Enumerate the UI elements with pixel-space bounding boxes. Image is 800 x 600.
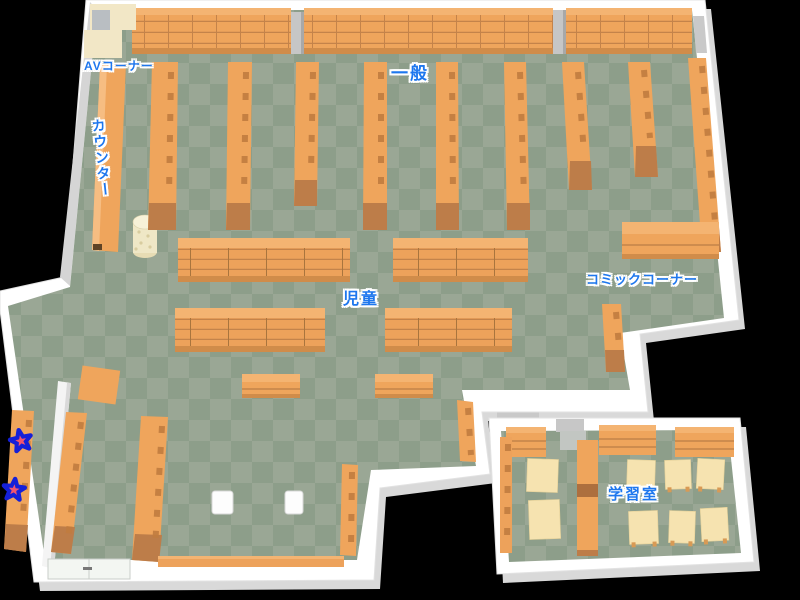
children-bench-right [375, 374, 433, 398]
entrance-door [48, 559, 130, 579]
library-floor-map: AVコーナー 一般 カウンター 児童 コミックコーナー 学習室 [0, 0, 800, 600]
wall-pillar-2 [553, 10, 566, 54]
wall-shelving-right [566, 8, 692, 54]
label-av-corner: AVコーナー [84, 57, 154, 74]
children-bench-left [242, 374, 300, 398]
wall-shelving-center [304, 8, 553, 54]
bookshelf-lower-rightwall [340, 464, 358, 556]
label-general: 一般 [391, 59, 429, 84]
bottom-wall-shelf [158, 556, 344, 567]
label-children: 児童 [343, 285, 379, 309]
wall-pillar-1 [291, 12, 304, 54]
annex-divider-shelf [577, 440, 598, 556]
wall-shelving-left [132, 8, 291, 54]
floor-map-canvas [0, 0, 800, 600]
label-comic-corner: コミックコーナー [586, 269, 698, 288]
children-shelf-row1-left [178, 238, 350, 282]
annex-top-shelves [506, 425, 734, 457]
annex-door-gap [556, 419, 584, 432]
children-shelf-row2-left [175, 308, 325, 352]
children-shelf-row1-right [393, 238, 528, 282]
comic-corner-shelf [622, 222, 719, 259]
bookshelf-east-wall [457, 400, 476, 462]
chair-left [212, 491, 233, 514]
label-study-room: 学習室 [608, 483, 659, 504]
floor-mat [78, 366, 120, 405]
children-shelf-row2-right [385, 308, 512, 352]
chair-right [285, 491, 303, 514]
comic-wall-shelf [602, 304, 625, 372]
annex-left-wall-shelf [500, 437, 512, 553]
